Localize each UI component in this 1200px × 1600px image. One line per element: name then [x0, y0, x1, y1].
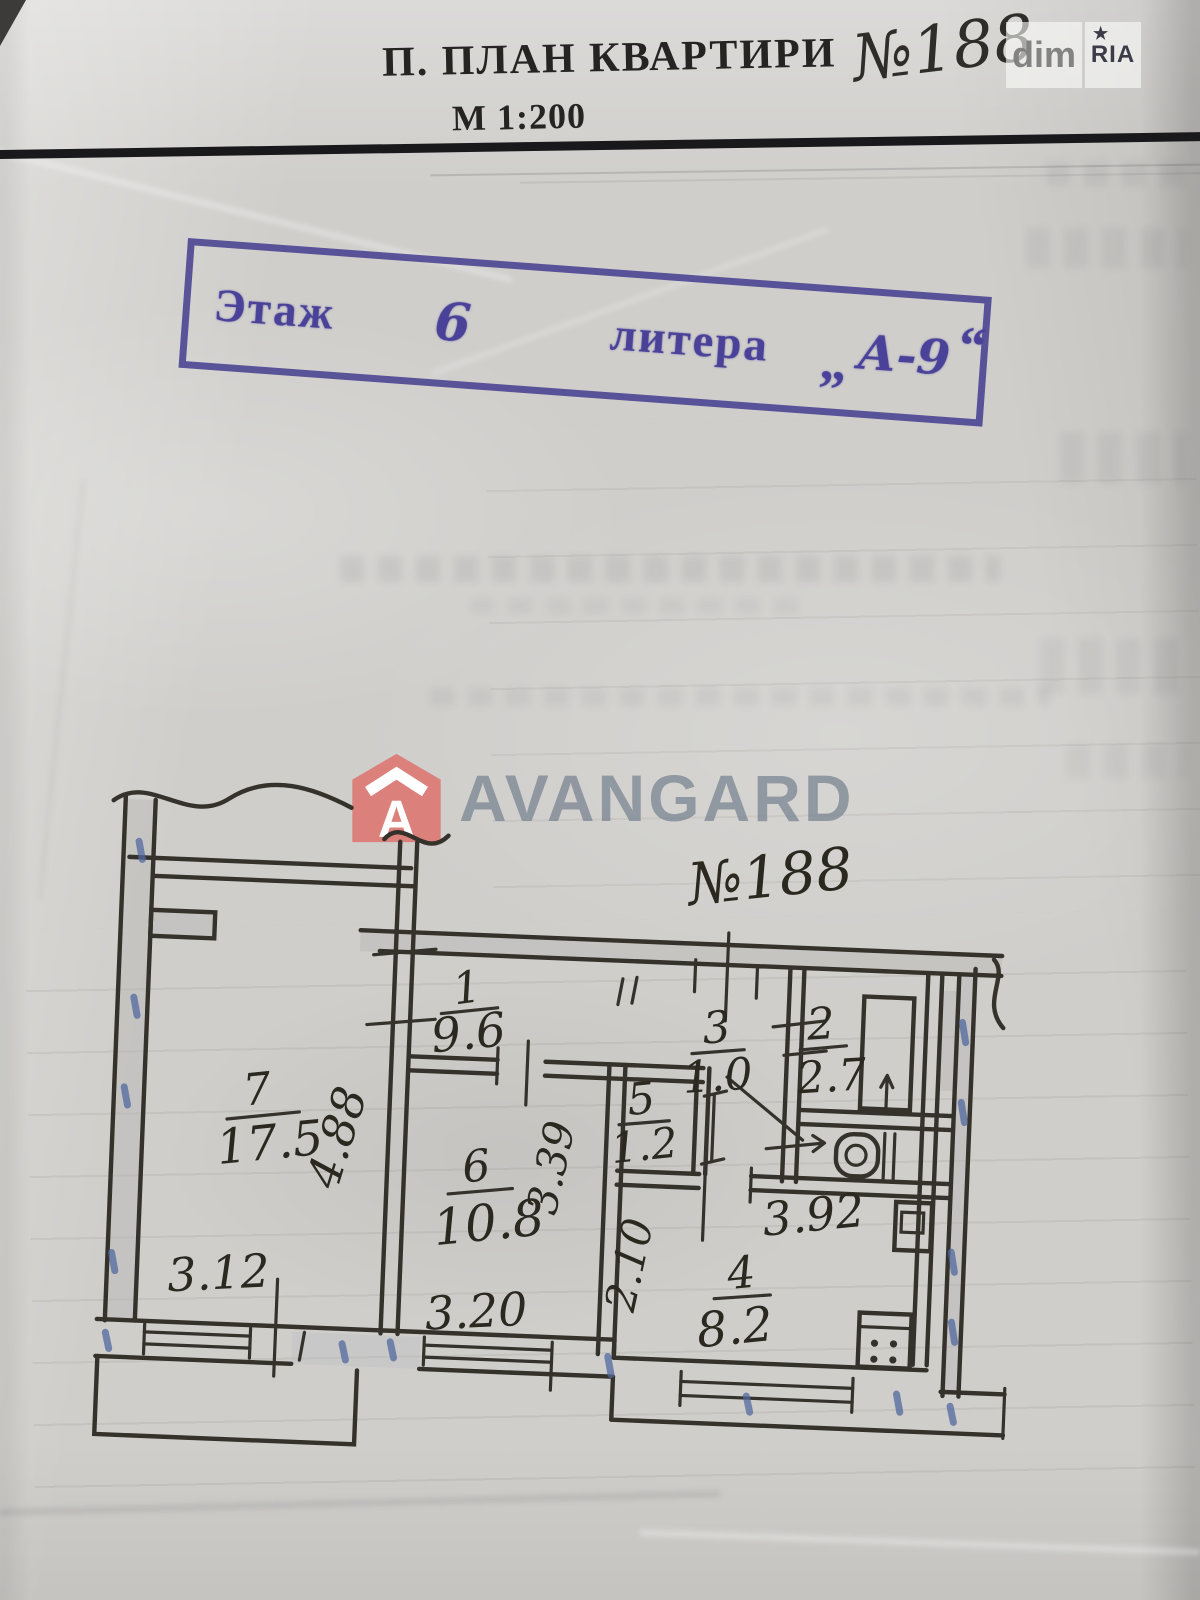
floor-plan-svg: 1 9.6 2 2.7 3 1.0 4 8.2 5 1.2 6 10.8 7 — [0, 0, 1200, 1600]
dim-2-10: 2.10 — [595, 1214, 663, 1317]
dim-3-39: 3.39 — [517, 1117, 585, 1219]
ria-logo-text: RIA — [1091, 41, 1135, 69]
room-5-number: 5 — [625, 1072, 658, 1126]
room-1-area: 9.6 — [429, 1002, 509, 1064]
stove-icon — [858, 1313, 912, 1369]
balcony-door-faded — [291, 1332, 420, 1369]
plan-apartment-number: №188 — [681, 834, 856, 919]
room-4-area: 8.2 — [694, 1296, 776, 1359]
sink-icon — [894, 1202, 932, 1251]
room-4-number: 4 — [724, 1247, 758, 1301]
room-7-number: 7 — [241, 1063, 274, 1117]
dim-3-92: 3.92 — [760, 1183, 867, 1247]
balcony-outline — [94, 1356, 357, 1444]
room-6-number: 6 — [460, 1140, 493, 1194]
dim-4-88: 4.88 — [296, 1080, 378, 1195]
room-3-area: 1.0 — [681, 1049, 754, 1104]
dim-ria-watermark: dim ★ RIA — [1006, 22, 1141, 88]
room-2-area: 2.7 — [794, 1049, 868, 1104]
window-room6 — [422, 1337, 552, 1390]
dim-3-12: 3.12 — [166, 1243, 271, 1302]
room-3-number: 3 — [701, 1002, 732, 1055]
star-icon: ★ — [1093, 24, 1109, 44]
bathtub-icon — [860, 996, 915, 1112]
room-2-number: 2 — [804, 998, 836, 1051]
dim-logo: dim — [1006, 22, 1082, 88]
ria-logo: ★ RIA — [1085, 22, 1141, 88]
room-5-area: 1.2 — [609, 1118, 680, 1173]
scanned-floor-plan-page: П. ПЛАН КВАРТИРИ №188 М 1:200 Этаж 6 лит… — [0, 0, 1200, 1600]
toilet-icon — [835, 1132, 895, 1180]
floor-plan: 1 9.6 2 2.7 3 1.0 4 8.2 5 1.2 6 10.8 7 — [88, 778, 1028, 1470]
window-room7 — [143, 1324, 250, 1358]
window-kitchen — [680, 1371, 853, 1412]
dim-3-20: 3.20 — [424, 1282, 529, 1341]
